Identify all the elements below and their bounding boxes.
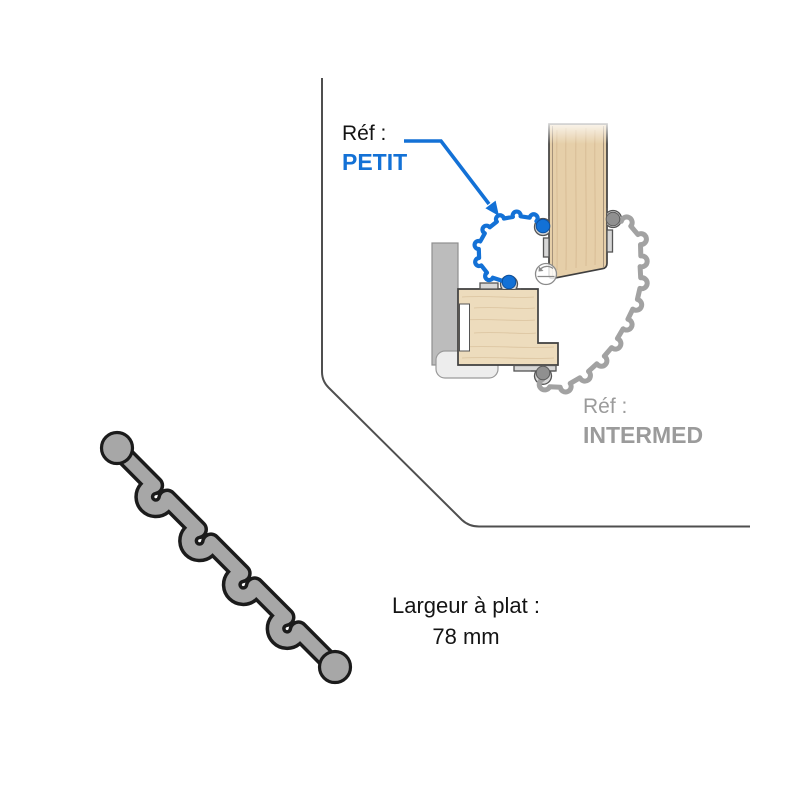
clip-plank-right-leg — [607, 230, 613, 252]
label-seal-petit: Réf : PETIT — [342, 119, 407, 177]
seal-technical-diagram: Réf : PETIT Réf : INTERMED Largeur à pla… — [0, 0, 800, 800]
petit-ref-text: Réf : — [342, 119, 407, 148]
clip-frame-top-flange — [480, 283, 498, 289]
seal-petit-anchor-bottom — [502, 275, 516, 289]
flat-profile-end-ball-top — [102, 433, 133, 464]
label-seal-intermed: Réf : INTERMED — [583, 392, 703, 450]
frame-block — [458, 289, 558, 365]
flat-width-caption: Largeur à plat : — [348, 590, 584, 621]
clip-plank-left-leg — [544, 238, 550, 257]
plank-grain — [595, 130, 596, 265]
intermed-name-text: INTERMED — [583, 421, 703, 450]
rotation-symbol-icon — [536, 264, 557, 285]
plank-top-fade — [545, 118, 611, 144]
door-leaf-plank — [545, 118, 611, 278]
cross-section-drawing — [404, 118, 647, 392]
seal-petit-path — [475, 212, 543, 283]
label-flat-width: Largeur à plat : 78 mm — [348, 590, 584, 652]
plank-grain — [557, 130, 558, 270]
plank-grain — [586, 128, 587, 266]
flat-width-value: 78 mm — [348, 621, 584, 652]
seal-petit-anchor-top — [536, 219, 550, 233]
flat-seal-profile — [102, 433, 351, 683]
plank-grain — [576, 130, 577, 268]
plank-grain — [566, 128, 567, 270]
petit-name-text: PETIT — [342, 148, 407, 177]
seal-intermed-anchor-top — [606, 212, 620, 226]
leader-arrow — [404, 141, 499, 216]
wall-section — [432, 243, 458, 365]
intermed-ref-text: Réf : — [583, 392, 703, 421]
frame-slot — [460, 304, 470, 351]
flat-profile-end-ball-bottom — [320, 652, 351, 683]
flat-profile-body — [117, 448, 335, 667]
seal-intermed-anchor-bottom — [536, 366, 550, 380]
